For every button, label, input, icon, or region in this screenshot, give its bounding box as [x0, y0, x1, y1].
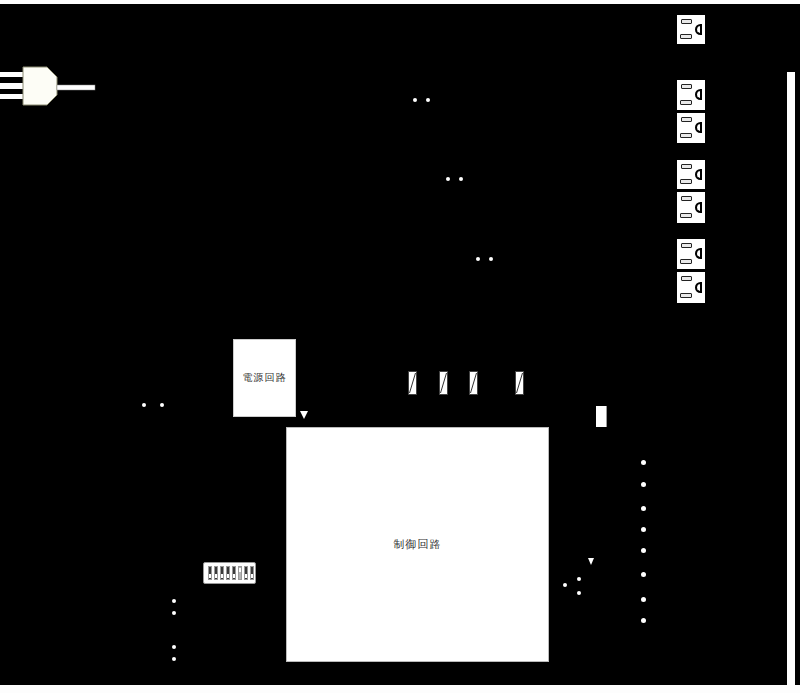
dip-switch-lever-1[interactable] — [208, 566, 212, 580]
power-plug-icon — [0, 60, 100, 110]
dip-switch-nub — [209, 574, 211, 578]
arrow-down-icon — [300, 411, 308, 419]
indicator-dot — [641, 506, 646, 511]
outlet-icon-4 — [675, 158, 707, 191]
indicator-dot — [641, 482, 646, 487]
contact-dot — [476, 257, 480, 261]
power-supply-box: 電源回路 — [233, 339, 296, 417]
contact-dot — [172, 611, 176, 615]
dip-switch-nub — [233, 574, 235, 578]
contact-dot — [446, 177, 450, 181]
outlet-slot — [681, 276, 692, 281]
dip-switch-nub — [245, 574, 247, 578]
outlet-slot — [681, 164, 692, 169]
outlet-ground-hole — [695, 89, 702, 100]
dip-switch-lever-5[interactable] — [232, 566, 236, 580]
control-box: 制御回路 — [286, 427, 549, 662]
schematic-diagram: 電源回路 制御回路 — [0, 0, 800, 693]
fuse-icon-1 — [408, 371, 417, 395]
outlet-slot — [681, 196, 692, 201]
dip-switch-nub — [239, 568, 241, 572]
outlet-ground-hole — [695, 169, 702, 180]
dip-switch-nub — [251, 574, 253, 578]
indicator-dot — [641, 597, 646, 602]
page-edge-right — [787, 72, 795, 688]
dip-switch-lever-8[interactable] — [250, 566, 254, 580]
small-component — [596, 406, 607, 427]
outlet-slot — [681, 117, 692, 122]
indicator-dot — [641, 548, 646, 553]
outlet-ground-hole — [695, 282, 702, 293]
contact-dot — [426, 98, 430, 102]
outlet-slot — [681, 19, 692, 24]
dip-switch-nub — [227, 574, 229, 578]
dip-switch-nub — [215, 574, 217, 578]
outlet-ground-hole — [695, 122, 702, 133]
outlet-icon-5 — [675, 190, 707, 225]
dip-switch-lever-6[interactable] — [238, 566, 242, 580]
outlet-icon-2 — [675, 78, 707, 112]
outlet-slot — [680, 213, 692, 218]
dip-switch-nub — [221, 574, 223, 578]
control-label: 制御回路 — [394, 537, 442, 552]
indicator-dot — [641, 572, 646, 577]
contact-dot — [172, 599, 176, 603]
dip-switch-lever-7[interactable] — [244, 566, 248, 580]
contact-dot — [413, 98, 417, 102]
outlet-icon-3 — [675, 111, 707, 145]
outlet-slot — [680, 259, 692, 264]
fuse-icon-2 — [439, 371, 448, 395]
outlet-icon-1 — [675, 13, 707, 46]
outlet-slot — [680, 133, 692, 138]
indicator-dot — [641, 527, 646, 532]
indicator-dot — [641, 618, 646, 623]
outlet-icon-7 — [675, 270, 707, 305]
indicator-dot — [641, 460, 646, 465]
outlet-icon-6 — [675, 237, 707, 271]
outlet-slot — [681, 243, 692, 248]
fuse-icon-4 — [515, 371, 524, 395]
dip-switch-lever-2[interactable] — [214, 566, 218, 580]
contact-dot — [142, 403, 146, 407]
contact-dot — [577, 591, 581, 595]
contact-dot — [459, 177, 463, 181]
outlet-ground-hole — [695, 202, 702, 213]
contact-dot — [172, 645, 176, 649]
contact-dot — [160, 403, 164, 407]
power-supply-label: 電源回路 — [243, 371, 287, 385]
power-plug-shape — [0, 60, 100, 110]
outlet-slot — [680, 34, 692, 39]
outlet-slot — [680, 293, 692, 298]
contact-dot — [489, 257, 493, 261]
contact-dot — [563, 583, 567, 587]
fuse-icon-3 — [469, 371, 478, 395]
outlet-slot — [680, 100, 692, 105]
page-edge-top — [0, 0, 800, 4]
contact-dot — [577, 577, 581, 581]
outlet-slot — [680, 179, 692, 184]
dip-switch — [203, 562, 256, 584]
page-edge-bottom — [0, 685, 800, 693]
outlet-ground-hole — [695, 24, 702, 35]
contact-dot — [172, 657, 176, 661]
outlet-slot — [681, 84, 692, 89]
arrow-down-icon-2 — [588, 558, 594, 565]
dip-switch-lever-4[interactable] — [226, 566, 230, 580]
outlet-ground-hole — [695, 248, 702, 259]
dip-switch-lever-3[interactable] — [220, 566, 224, 580]
